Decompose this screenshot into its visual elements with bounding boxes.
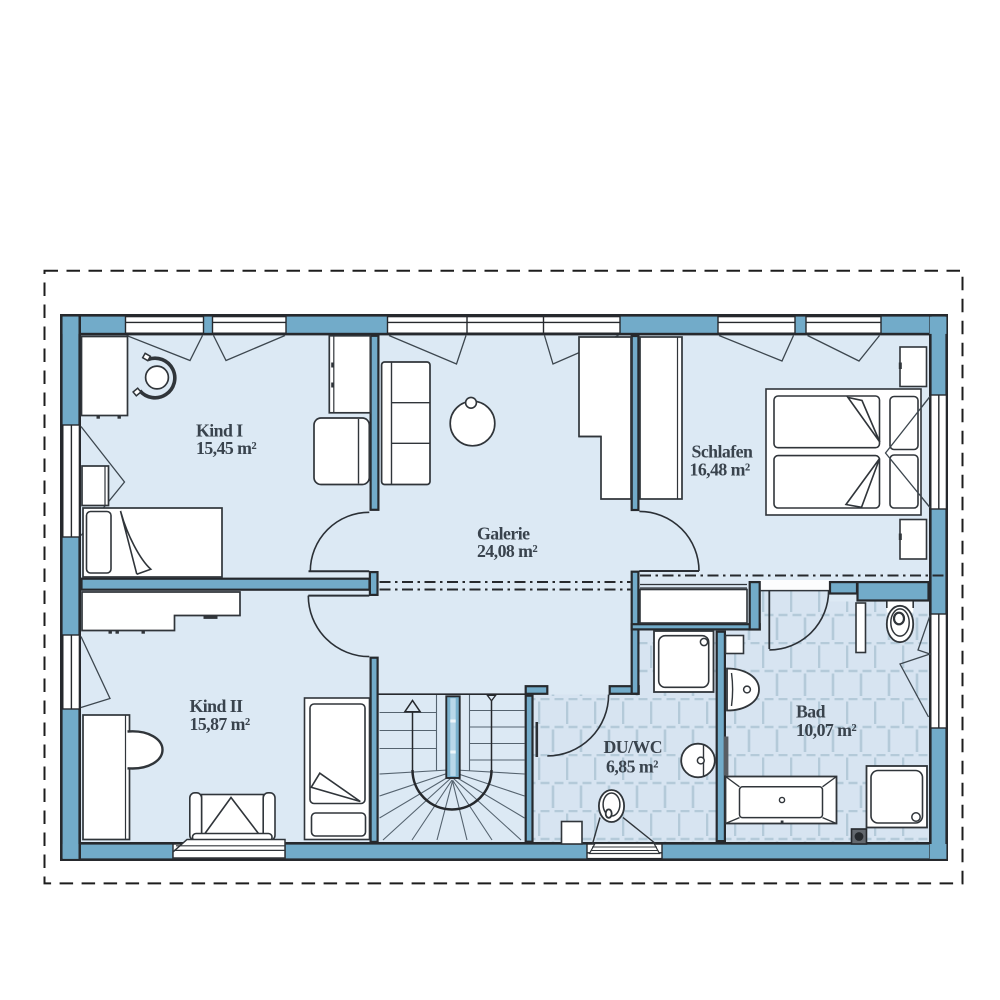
svg-text:16,48 m²: 16,48 m² <box>690 460 750 480</box>
svg-text:15,87 m²: 15,87 m² <box>190 714 250 734</box>
svg-text:Bad: Bad <box>796 702 826 722</box>
svg-text:Kind II: Kind II <box>190 696 244 716</box>
svg-text:24,08 m²: 24,08 m² <box>477 541 537 561</box>
svg-text:10,07 m²: 10,07 m² <box>796 720 856 740</box>
svg-text:DU/WC: DU/WC <box>604 737 663 757</box>
svg-text:15,45 m²: 15,45 m² <box>196 438 256 458</box>
svg-text:6,85 m²: 6,85 m² <box>606 757 658 777</box>
svg-text:Schlafen: Schlafen <box>692 442 753 462</box>
